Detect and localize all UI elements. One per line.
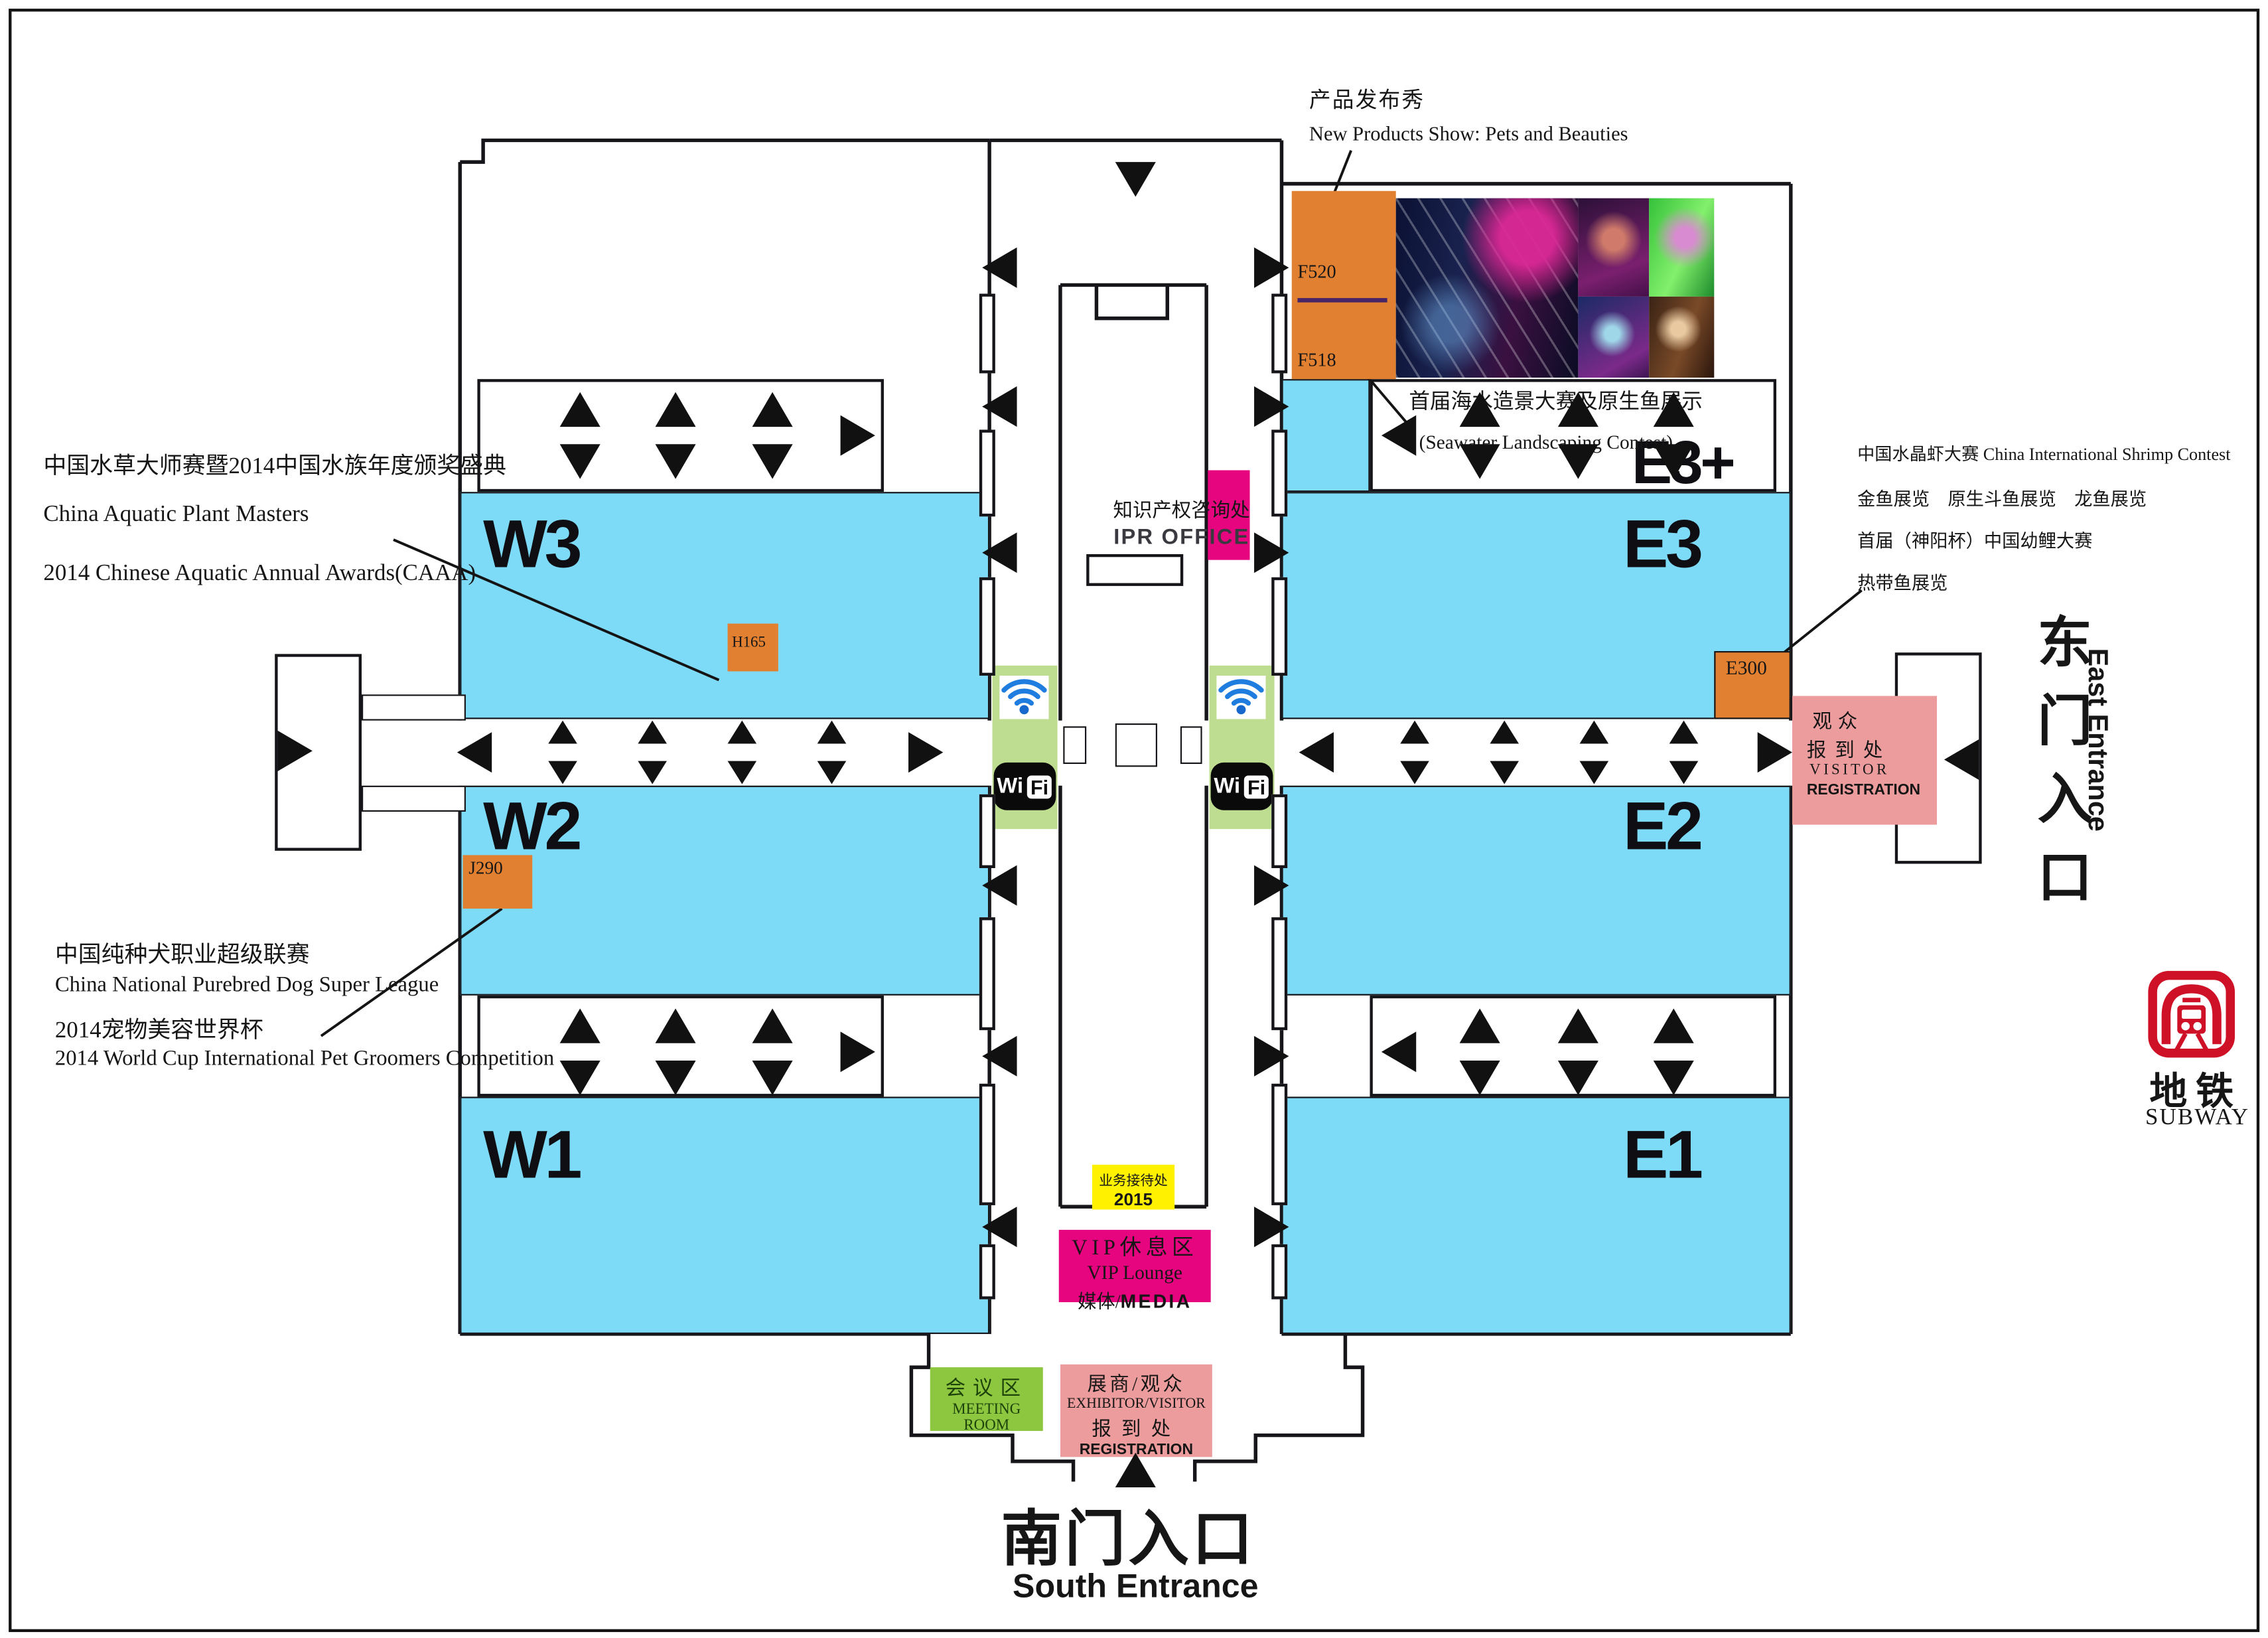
wifi-fi: Fi: [1026, 773, 1052, 799]
corridor-wall-segment: [1271, 577, 1287, 676]
arrow-right-icon: [908, 732, 943, 773]
exh-reg-l3: 报到处: [1060, 1412, 1212, 1442]
arrow-left-icon: [982, 248, 1017, 288]
arrow-down-icon: [1460, 444, 1500, 479]
shrimp-l1: 中国水晶虾大赛 China International Shrimp Conte…: [1857, 441, 2230, 466]
corridor-wall-segment: [1271, 1084, 1287, 1205]
photo-2: [1578, 198, 1649, 297]
arrow-right-icon: [1254, 386, 1289, 427]
arrow-up-icon: [548, 721, 577, 744]
shrimp-l2: 金鱼展览 原生斗鱼展览 龙鱼展览: [1857, 483, 2147, 510]
booth-divider: [1297, 298, 1387, 301]
arrow-up-icon: [817, 721, 847, 744]
arrow-down-icon: [1558, 444, 1598, 479]
arrow-up-icon: [1580, 721, 1609, 744]
hall-label-w1: W1: [483, 1114, 579, 1194]
vis-reg-l1: 观众: [1813, 705, 1937, 734]
arrow-up-icon: [1654, 392, 1694, 427]
product-show-en: New Products Show: Pets and Beauties: [1309, 124, 1628, 147]
photo-5: [1649, 297, 1714, 378]
arrow-right-icon: [1758, 732, 1792, 773]
arrow-right-icon: [1254, 248, 1289, 288]
arrow-down-icon: [1580, 761, 1609, 784]
subway-en: SUBWAY: [2145, 1106, 2249, 1132]
corridor-wall-segment: [979, 1084, 995, 1205]
arrow-down-icon: [1558, 1061, 1598, 1095]
arrow-left-icon: [982, 386, 1017, 427]
arrow-up-icon: [1558, 1008, 1598, 1043]
arrow-up-icon: [560, 392, 601, 427]
hall-label-w3: W3: [483, 504, 579, 583]
arrow-up-icon: [560, 1008, 601, 1043]
aquatic-en1: China Aquatic Plant Masters: [43, 502, 309, 528]
arrow-down-icon: [560, 444, 601, 479]
ipr-zh: 知识产权咨询处: [1113, 493, 1250, 522]
meeting-room-box: 会议区 MEETING ROOM: [930, 1367, 1043, 1431]
arrow-down-icon: [1654, 1061, 1694, 1095]
vis-reg-l4: REGISTRATION: [1807, 781, 1937, 798]
dog-en2: 2014 World Cup International Pet Groomer…: [55, 1047, 554, 1072]
vip-media-en: MEDIA: [1121, 1291, 1192, 1313]
dog-zh1: 中国纯种犬职业超级联赛: [55, 934, 310, 969]
vip-en: VIP Lounge: [1059, 1262, 1211, 1285]
vip-media-zh: 媒体/: [1078, 1291, 1121, 1313]
arrow-left-icon: [1299, 732, 1334, 773]
arrow-down-icon: [1669, 761, 1699, 784]
arrow-up-icon: [728, 721, 757, 744]
arrow-down-icon: [656, 444, 696, 479]
vis-reg-l3: VISITOR: [1809, 763, 1937, 779]
wifi-zone-west: WiFi: [992, 666, 1057, 829]
corridor-wall-segment: [979, 794, 995, 868]
wifi-signal-icon: [999, 676, 1048, 719]
arrow-left-icon: [457, 732, 492, 773]
booth-e300-label: E300: [1726, 657, 1767, 680]
vis-reg-l2: 报到处: [1807, 733, 1937, 763]
arrow-up-icon: [1460, 1008, 1500, 1043]
corridor-wall-segment: [1271, 294, 1287, 374]
hall-label-e2: E2: [1623, 786, 1701, 865]
photo-main: [1396, 198, 1579, 378]
arrow-left-icon: [1382, 1031, 1416, 1072]
exhibition-floorplan: F520 F518 H165 J290 E300 知识产权咨询处 IPR OFF…: [0, 0, 2268, 1638]
arrow-right-icon: [1254, 532, 1289, 573]
photo-4: [1578, 297, 1649, 378]
dog-en1: China National Purebred Dog Super League: [55, 974, 439, 998]
exh-reg-l2: EXHIBITOR/VISITOR: [1060, 1396, 1212, 1412]
arrow-right-icon: [1254, 865, 1289, 906]
arrow-down-icon: [728, 761, 757, 784]
south-entrance-zh: 南门入口: [1001, 1490, 1256, 1578]
arrow-down-icon: [1460, 1061, 1500, 1095]
aquatic-en2: 2014 Chinese Aquatic Annual Awards(CAAA): [43, 561, 476, 587]
arrow-up-icon: [1115, 1453, 1156, 1487]
booth-f518-label: F518: [1297, 348, 1336, 372]
arrow-down-icon: [638, 761, 667, 784]
arrow-up-icon: [1460, 392, 1500, 427]
arrow-left-icon: [982, 1207, 1017, 1247]
photo-3: [1649, 198, 1714, 297]
exhibitor-registration-box: 展商/观众 EXHIBITOR/VISITOR 报到处 REGISTRATION: [1060, 1365, 1212, 1457]
corridor-wall-segment: [979, 1244, 995, 1300]
arrow-up-icon: [638, 721, 667, 744]
corridor-wall-segment: [979, 429, 995, 516]
service-desk-year: 2015: [1092, 1189, 1174, 1210]
arrow-up-icon: [1490, 721, 1519, 744]
seawater-en: (Seawater Landscaping Contest): [1419, 431, 1673, 455]
arrow-right-icon: [1254, 1207, 1289, 1247]
wifi-fi: Fi: [1243, 773, 1269, 799]
arrow-up-icon: [752, 392, 793, 427]
corridor-wall-segment: [1271, 917, 1287, 1030]
hall-label-e1: E1: [1623, 1114, 1701, 1194]
vip-lounge-box: VIP休息区 VIP Lounge 媒体/MEDIA: [1059, 1230, 1211, 1302]
wifi-wi: Wi: [997, 774, 1023, 798]
vip-zh: VIP休息区: [1059, 1231, 1211, 1262]
arrow-down-icon: [1654, 444, 1694, 479]
arrow-down-icon: [817, 761, 847, 784]
arrow-down-icon: [752, 444, 793, 479]
arrow-up-icon: [1669, 721, 1699, 744]
booth-f520-f518: F520 F518: [1292, 191, 1396, 379]
subway-icon: [2147, 970, 2236, 1059]
arrow-right-icon: [278, 731, 313, 771]
wifi-signal-icon: [1216, 676, 1265, 719]
wifi-zone-east: WiFi: [1209, 666, 1274, 829]
meeting-zh: 会议区: [930, 1373, 1043, 1402]
arrow-up-icon: [656, 1008, 696, 1043]
floorplan-scaler: F520 F518 H165 J290 E300 知识产权咨询处 IPR OFF…: [0, 0, 2268, 1638]
arrow-right-icon: [841, 1031, 875, 1072]
arrow-left-icon: [982, 865, 1017, 906]
shrimp-l3: 首届（神阳杯）中国幼鲤大赛: [1857, 525, 2092, 552]
hall-label-e3: E3: [1623, 504, 1701, 583]
arrow-down-icon: [1115, 162, 1156, 196]
visitor-registration-box: 观众 报到处 VISITOR REGISTRATION: [1792, 696, 1937, 825]
vip-media: 媒体/MEDIA: [1059, 1286, 1211, 1313]
arrow-up-icon: [1400, 721, 1429, 744]
shrimp-l4: 热带鱼展览: [1857, 567, 1948, 595]
arrow-down-icon: [560, 1061, 601, 1095]
wifi-badge-icon: WiFi: [1211, 763, 1273, 810]
east-entrance-en: East Entrance: [2080, 648, 2112, 895]
arrow-down-icon: [548, 761, 577, 784]
arrow-left-icon: [1382, 415, 1416, 456]
stage-photos: [1396, 198, 1715, 378]
arrow-up-icon: [1654, 1008, 1694, 1043]
arrow-down-icon: [1400, 761, 1429, 784]
arrow-left-icon: [982, 532, 1017, 573]
corridor-wall-segment: [979, 917, 995, 1030]
arrow-right-icon: [1254, 1036, 1289, 1077]
product-show-zh: 产品发布秀: [1309, 84, 1425, 114]
aquatic-zh: 中国水草大师赛暨2014中国水族年度颁奖盛典: [43, 445, 506, 480]
wifi-badge-icon: WiFi: [994, 763, 1056, 810]
booth-h165: H165: [728, 624, 778, 672]
corridor-wall-segment: [979, 577, 995, 676]
booth-f520-label: F520: [1297, 260, 1336, 283]
arrow-right-icon: [841, 415, 875, 456]
booth-h165-label: H165: [732, 635, 766, 651]
exh-reg-l1: 展商/观众: [1060, 1367, 1212, 1396]
south-entrance-en: South Entrance: [1013, 1567, 1259, 1606]
ipr-office-text: 知识产权咨询处 IPR OFFICE: [1113, 493, 1250, 550]
arrow-down-icon: [1490, 761, 1519, 784]
arrow-left-icon: [1944, 739, 1979, 780]
hall-label-w2: W2: [483, 786, 579, 865]
booth-e300: E300: [1714, 651, 1791, 719]
arrow-up-icon: [656, 392, 696, 427]
meeting-en: MEETING ROOM: [930, 1402, 1043, 1434]
wifi-wi: Wi: [1214, 774, 1240, 798]
arrow-left-icon: [982, 1036, 1017, 1077]
ipr-en: IPR OFFICE: [1113, 525, 1250, 550]
arrow-down-icon: [752, 1061, 793, 1095]
service-desk-box: 业务接待处 2015: [1092, 1165, 1174, 1210]
corridor-wall-segment: [1271, 1244, 1287, 1300]
arrow-up-icon: [1558, 392, 1598, 427]
corridor-wall-segment: [979, 294, 995, 374]
dog-zh2: 2014宠物美容世界杯: [55, 1010, 263, 1045]
arrow-down-icon: [656, 1061, 696, 1095]
corridor-wall-segment: [1271, 794, 1287, 868]
arrow-up-icon: [752, 1008, 793, 1043]
corridor-wall-segment: [1271, 429, 1287, 516]
service-desk-zh: 业务接待处: [1092, 1169, 1174, 1189]
subway-block: 地铁 SUBWAY: [2141, 970, 2251, 1136]
